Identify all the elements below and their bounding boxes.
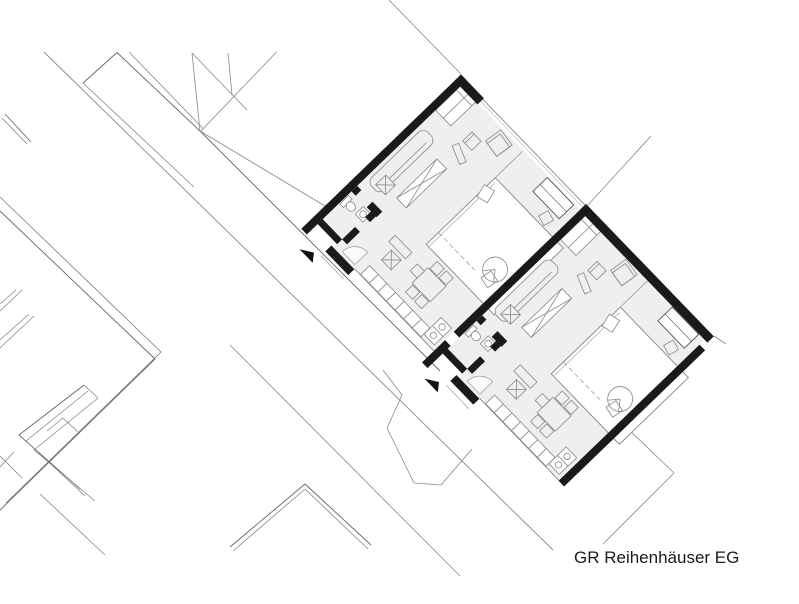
svg-text:GR Reihenhäuser EG: GR Reihenhäuser EG [574, 548, 739, 567]
